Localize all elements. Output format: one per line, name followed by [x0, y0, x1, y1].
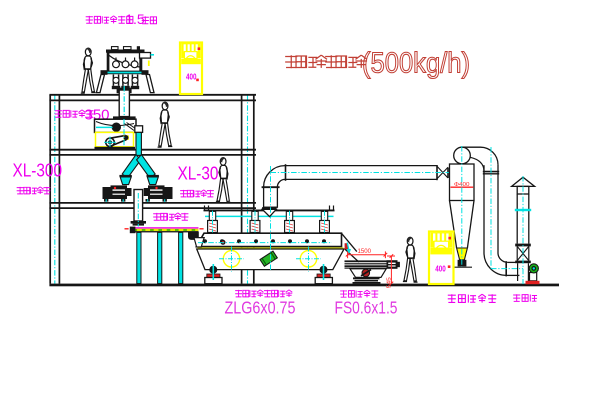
svg-text:400: 400	[435, 264, 446, 274]
svg-text:XL-300: XL-300	[13, 161, 63, 181]
svg-text:FS0.6x1.5: FS0.6x1.5	[335, 298, 398, 318]
svg-text:400: 400	[186, 72, 197, 82]
svg-text:545: 545	[387, 277, 393, 288]
svg-text:1500: 1500	[358, 249, 372, 255]
svg-text:1.5: 1.5	[125, 11, 145, 27]
svg-text:(500kg/h): (500kg/h)	[362, 48, 470, 80]
svg-text:ZLG6x0.75: ZLG6x0.75	[225, 298, 296, 318]
